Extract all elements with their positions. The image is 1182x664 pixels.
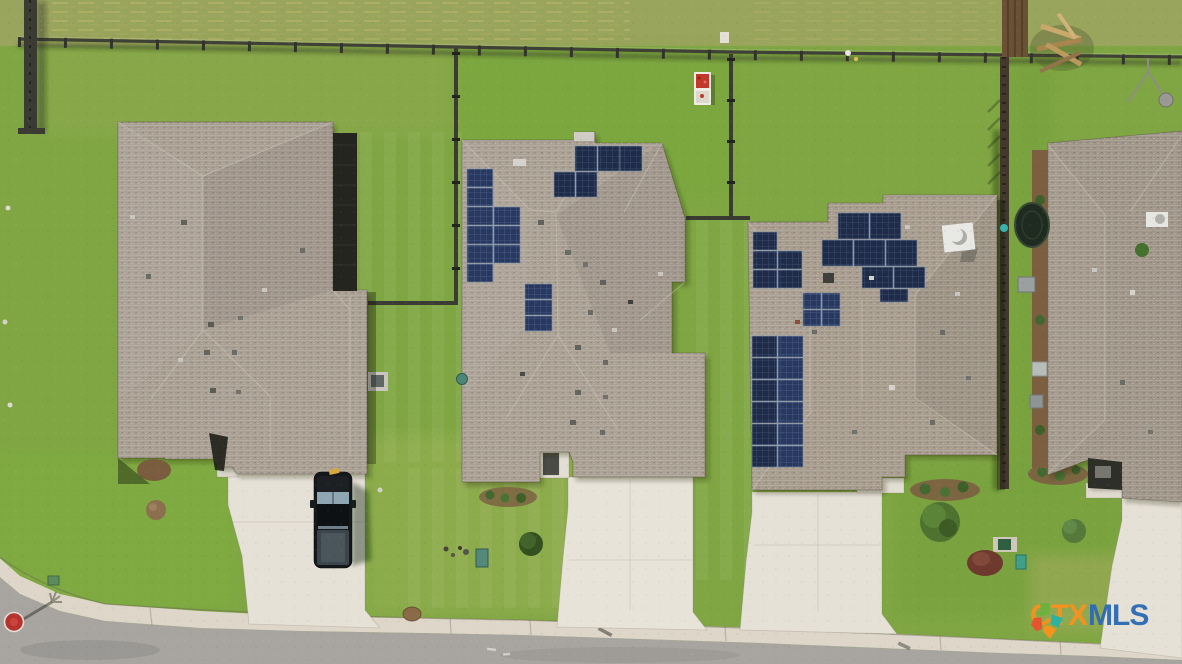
mls-watermark: CTXMLS bbox=[1030, 601, 1148, 631]
texas-logo-icon bbox=[1030, 601, 1064, 641]
watermark-suffix: MLS bbox=[1088, 601, 1148, 631]
photo-grain bbox=[0, 0, 1182, 664]
aerial-photo: CTXMLS bbox=[0, 0, 1182, 664]
aerial-scene bbox=[0, 0, 1182, 664]
